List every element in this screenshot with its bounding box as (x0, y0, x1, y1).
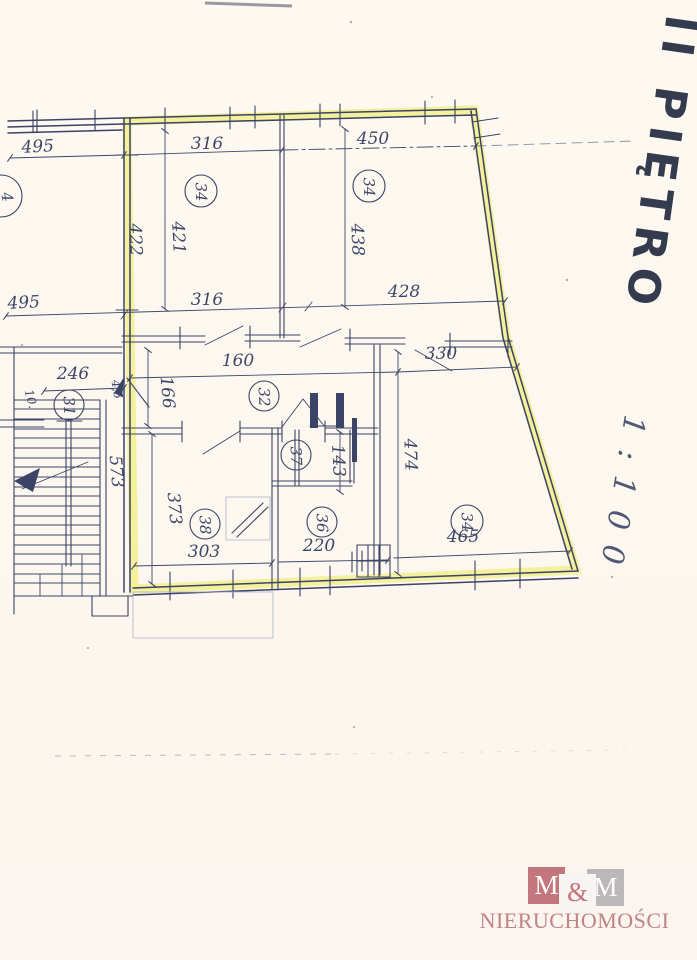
logo-m1: M (534, 870, 558, 901)
dim-330: 330 (425, 344, 458, 364)
dim-438: 438 (346, 222, 367, 256)
dim-373: 373 (163, 492, 186, 526)
dim-160: 160 (222, 351, 255, 371)
dim-316-mid: 316 (191, 290, 224, 310)
room-label-edge: 4 (0, 190, 17, 204)
stair-handrail (57, 421, 82, 566)
room-label-bathroom: 37 (287, 446, 306, 466)
dim-143: 143 (327, 444, 349, 477)
room-label-303: 38 (196, 515, 215, 535)
stair-direction-arrow (14, 468, 40, 492)
dim-573: 573 (105, 455, 128, 489)
dim-495-top: 495 (20, 136, 54, 158)
wall-note: 4,5 (108, 378, 125, 400)
dim-428: 428 (387, 282, 421, 302)
dim-220: 220 (302, 536, 336, 556)
dim-422: 422 (124, 222, 146, 256)
stair-note: 10. (22, 388, 40, 410)
room-label-hall: 32 (255, 387, 274, 407)
agency-logo: M & M NIERUCHOMOŚCI (455, 862, 690, 954)
logo-ampersand: & (567, 877, 588, 908)
room-label-top-left: 34 (192, 182, 211, 202)
dim-474: 474 (399, 437, 420, 471)
vent-symbol (226, 497, 270, 540)
room-label-220: 36 (313, 513, 332, 533)
dim-246: 246 (56, 364, 90, 384)
walls-layer (0, 109, 578, 595)
room-label-stairs: 31 (60, 396, 79, 416)
scanned-floor-plan-page: { "title": { "floor": "II PIĘTRO", "scal… (0, 0, 697, 960)
scale-label: 1:100 (591, 413, 652, 583)
floor-title: II PIĘTRO (614, 12, 697, 316)
dim-495-mid: 495 (6, 292, 40, 314)
dim-421: 421 (167, 220, 189, 254)
dim-316-top: 316 (191, 134, 224, 154)
room-label-465: 34 (458, 512, 477, 532)
dim-303: 303 (188, 542, 220, 562)
dim-166: 166 (156, 376, 179, 410)
stair-treads (14, 409, 100, 583)
logo-company-name: NIERUCHOMOŚCI (457, 908, 692, 934)
balcony-outline (133, 592, 273, 638)
room-label-top-right: 34 (360, 177, 379, 197)
logo-m2: M (593, 872, 617, 903)
logo-square-amp: & (559, 874, 596, 911)
floor-plan-drawing: 495 316 450 422 421 438 495 316 428 246 … (0, 0, 697, 960)
dim-450-top: 450 (356, 129, 390, 149)
